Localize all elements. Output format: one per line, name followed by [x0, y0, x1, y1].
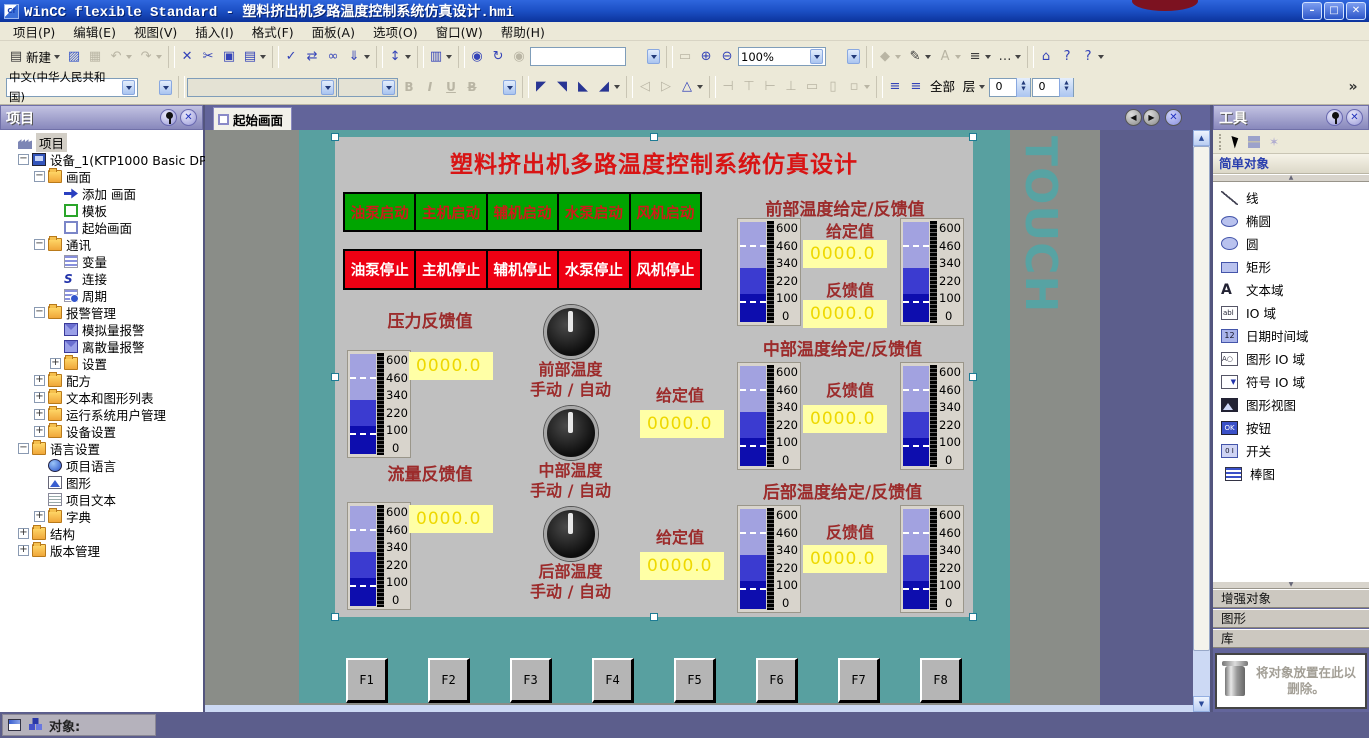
language-dd[interactable]: [139, 76, 175, 98]
menu-item[interactable]: 窗口(W): [427, 22, 492, 41]
gauge-scale-label: 100: [386, 423, 408, 437]
tree-item[interactable]: 字典: [0, 508, 203, 525]
tree-item[interactable]: 项目语言: [0, 457, 203, 474]
gauge-middle-feedback[interactable]: 6004603402201000: [900, 362, 964, 470]
new-button[interactable]: ▤ 新建: [6, 46, 63, 68]
knob-label: 中部温度手动 / 自动: [530, 461, 611, 501]
start-button[interactable]: 辅机启动: [488, 194, 557, 230]
layer-spinner-2[interactable]: 0: [1032, 78, 1074, 97]
middle-setpoint-io-field[interactable]: 0000.0: [640, 410, 724, 438]
tree-item[interactable]: 结构: [0, 525, 203, 542]
zoom-combo[interactable]: 100%: [738, 47, 826, 66]
rear-setpoint-label[interactable]: 给定值: [645, 524, 715, 548]
tree-item[interactable]: 报警管理: [0, 304, 203, 321]
transfer-button[interactable]: ⇓: [344, 46, 373, 68]
tool-switch[interactable]: 开关: [1213, 439, 1369, 462]
dropdown-arrow-icon[interactable]: [382, 80, 395, 95]
gauge-scale-label: 340: [776, 400, 798, 414]
flow-io-field[interactable]: 0000.0: [409, 505, 493, 533]
toolbar-grip: [1219, 134, 1222, 150]
rear-section-header[interactable]: 后部温度给定/反馈值: [720, 478, 965, 503]
fkey-button[interactable]: F7: [838, 658, 880, 703]
dropdown-arrow-icon[interactable]: [446, 55, 452, 59]
gauge-pressure[interactable]: 6004603402201000: [347, 350, 411, 458]
stop-button[interactable]: 辅机停止: [488, 251, 557, 288]
dropdown-arrow-icon[interactable]: [810, 49, 823, 64]
tree-item-icon: [32, 527, 46, 540]
align-top-button[interactable]: ⊤: [739, 76, 759, 98]
gauge-scale-label: 220: [776, 561, 798, 575]
gauge-scale-label: 460: [939, 383, 961, 397]
tree-expander-icon[interactable]: [34, 392, 45, 403]
gauge-scale-label: 340: [776, 256, 798, 270]
layer-spinner-1[interactable]: 0: [989, 78, 1031, 97]
same-size-button[interactable]: ▫: [844, 76, 873, 98]
simple-objects-list: 线 椭圆 圆 矩形 文本域 IO 域 日期时间域 图形 IO 域: [1213, 182, 1369, 581]
gauge-scale-label: 0: [939, 453, 961, 467]
layer-all-label[interactable]: 全部: [927, 76, 958, 98]
gauge-front-setpoint[interactable]: 6004603402201000: [737, 218, 801, 326]
font-color-button[interactable]: A: [935, 46, 964, 68]
gauge-scale-label: 340: [776, 543, 798, 557]
save-button[interactable]: ▦: [85, 46, 105, 68]
dropdown-arrow-icon[interactable]: [614, 85, 620, 89]
tool-datetime-field[interactable]: 日期时间域: [1213, 324, 1369, 347]
hmi-title[interactable]: 塑料挤出机多路温度控制系统仿真设计: [335, 145, 973, 179]
gauge-ticks: [377, 353, 384, 455]
tool-icon: [1221, 262, 1238, 273]
tool-text-field[interactable]: 文本域: [1213, 278, 1369, 301]
dropdown-arrow-icon[interactable]: [697, 85, 703, 89]
tree-item-icon: [64, 204, 78, 217]
tree-item[interactable]: 连接: [0, 270, 203, 287]
app-icon: Cf: [4, 4, 19, 19]
tool-bar-graph[interactable]: 棒图: [1213, 462, 1369, 485]
gauge-ticks: [767, 221, 774, 323]
selection-handle[interactable]: [650, 613, 658, 621]
title-bar: Cf WinCC flexible Standard - 塑料挤出机多路温度控制…: [0, 0, 1369, 22]
font-combo[interactable]: [187, 78, 337, 97]
tree-item[interactable]: 图形: [0, 474, 203, 491]
scroll-down-icon[interactable]: ▼: [1193, 696, 1210, 712]
select-cursor-icon[interactable]: [1231, 134, 1240, 148]
undo-button[interactable]: ↶: [106, 46, 135, 68]
cut-button[interactable]: ✂: [198, 46, 218, 68]
align-bottom-button[interactable]: ⊥: [781, 76, 801, 98]
dropdown-arrow-icon[interactable]: [260, 55, 266, 59]
dropdown-arrow-icon[interactable]: [864, 85, 870, 89]
tree-item[interactable]: 版本管理: [0, 542, 203, 559]
front-section-header[interactable]: 前部温度给定/反馈值: [725, 195, 965, 220]
gauge-scale-label: 340: [939, 400, 961, 414]
help-book-button[interactable]: ⌂: [1036, 46, 1056, 68]
tool-icon: [1221, 329, 1238, 343]
editor-area: 起始画面 ◀ ▶ ✕ TOUCH 塑料挤出机多路温度控制系统仿真设计 油泵启动主…: [205, 105, 1210, 712]
knob-label: 后部温度手动 / 自动: [530, 562, 611, 602]
close-panel-icon[interactable]: ✕: [180, 109, 197, 126]
fkey-button[interactable]: F6: [756, 658, 798, 703]
gauge-scale-label: 0: [939, 309, 961, 323]
copy-button[interactable]: ▣: [219, 46, 239, 68]
tool-line[interactable]: 线: [1213, 186, 1369, 209]
pressure-io-field[interactable]: 0000.0: [409, 352, 493, 380]
tree-expander-icon[interactable]: [34, 307, 45, 318]
project-panel: 项目 ✕ 项目 设备_1(KTP1000 Basic DP) 画面 添加 画面: [0, 105, 203, 712]
front-feedback-io-field[interactable]: 0000.0: [803, 300, 887, 328]
middle-section-header[interactable]: 中部温度给定/反馈值: [720, 335, 965, 360]
scrollbar-thumb[interactable]: [1193, 146, 1210, 651]
sort-button[interactable]: ↕: [385, 46, 414, 68]
dropdown-arrow-icon[interactable]: [1098, 55, 1104, 59]
horizontal-scrollbar[interactable]: [205, 705, 1193, 712]
gauge-scale-label: 460: [939, 526, 961, 540]
gauge-scale-label: 340: [386, 540, 408, 554]
tree-item[interactable]: 设备设置: [0, 423, 203, 440]
stop-button[interactable]: 主机停止: [416, 251, 485, 288]
tree-expander-icon[interactable]: [34, 239, 45, 250]
section-bar[interactable]: 图形: [1213, 609, 1369, 628]
delete-button[interactable]: ✕: [177, 46, 197, 68]
cross-reference-button[interactable]: ▥: [426, 46, 455, 68]
flow-label[interactable]: 流量反馈值: [365, 460, 495, 485]
maximize-button[interactable]: □: [1324, 2, 1344, 20]
tree-expander-icon[interactable]: [34, 375, 45, 386]
design-canvas[interactable]: TOUCH 塑料挤出机多路温度控制系统仿真设计 油泵启动主机启动辅机启动水泵启动…: [205, 130, 1193, 705]
dropdown-arrow-icon[interactable]: [122, 80, 135, 95]
pen-color-button[interactable]: ✎: [905, 46, 934, 68]
tree-expander-icon[interactable]: [50, 358, 61, 369]
tool-graphic-io-field[interactable]: 图形 IO 域: [1213, 347, 1369, 370]
menu-item[interactable]: 插入(I): [186, 22, 242, 41]
dropdown-arrow-icon[interactable]: [321, 80, 334, 95]
tool-ellipse[interactable]: 椭圆: [1213, 209, 1369, 232]
tab-next-icon[interactable]: ▶: [1143, 109, 1160, 126]
selection-handle[interactable]: [969, 373, 977, 381]
send-backward-button[interactable]: ≡: [906, 76, 926, 98]
fkey-button[interactable]: F1: [346, 658, 388, 703]
underline-button[interactable]: U: [441, 76, 461, 98]
line-width-button[interactable]: ≡: [965, 46, 994, 68]
gauge-scale-label: 0: [776, 596, 798, 610]
menu-item[interactable]: 帮助(H): [492, 22, 554, 41]
dropdown-arrow-icon[interactable]: [979, 85, 985, 89]
paste-button[interactable]: ▤: [240, 46, 269, 68]
tree-item[interactable]: 配方: [0, 372, 203, 389]
toolbar-overflow[interactable]: »: [1343, 76, 1363, 98]
preview-button[interactable]: ∞: [323, 46, 343, 68]
tree-item[interactable]: 文本和图形列表: [0, 389, 203, 406]
hmi-screen[interactable]: 塑料挤出机多路温度控制系统仿真设计 油泵启动主机启动辅机启动水泵启动风机启动 油…: [335, 137, 973, 617]
gauge-rear-feedback[interactable]: 6004603402201000: [900, 505, 964, 613]
dropdown-arrow-icon[interactable]: [159, 80, 172, 95]
tree-item[interactable]: 运行系统用户管理: [0, 406, 203, 423]
minimize-button[interactable]: –: [1302, 2, 1322, 20]
zoom-in-button[interactable]: ⊕: [696, 46, 716, 68]
tree-item[interactable]: 项目: [0, 134, 203, 151]
flip-h-button[interactable]: ◁: [635, 76, 655, 98]
dropdown-arrow-icon[interactable]: [925, 55, 931, 59]
italic-button[interactable]: I: [420, 76, 440, 98]
tree-item[interactable]: 设置: [0, 355, 203, 372]
front-setpoint-label[interactable]: 给定值: [810, 218, 890, 242]
tree-item-icon: [64, 340, 78, 353]
font-size-combo[interactable]: [338, 78, 398, 97]
help-search-button[interactable]: ?: [1078, 46, 1107, 68]
gauge-ticks: [930, 508, 937, 610]
search-input[interactable]: [530, 47, 626, 66]
tool-symbolic-io-field[interactable]: 符号 IO 域: [1213, 370, 1369, 393]
tree-expander-icon[interactable]: [34, 171, 45, 182]
stop-button[interactable]: 油泵停止: [345, 251, 414, 288]
collapse-band-up-icon[interactable]: ▲: [1213, 174, 1369, 182]
gauge-flow[interactable]: 6004603402201000: [347, 502, 411, 610]
tree-item-icon: [64, 187, 78, 200]
object-status-tab[interactable]: 对象:: [2, 714, 156, 736]
fkey-button[interactable]: F4: [592, 658, 634, 703]
dropdown-arrow-icon[interactable]: [985, 55, 991, 59]
rear-feedback-label[interactable]: 反馈值: [810, 519, 890, 543]
tree-item-icon: [32, 544, 46, 557]
dropdown-arrow-icon[interactable]: [847, 49, 860, 64]
selection-handle[interactable]: [969, 133, 977, 141]
flip-v-button[interactable]: ▷: [656, 76, 676, 98]
help-index-button[interactable]: ?: [1057, 46, 1077, 68]
start-runtime-button[interactable]: ⇄: [302, 46, 322, 68]
line-style-button[interactable]: …: [995, 46, 1024, 68]
tool-icon: [1221, 444, 1238, 458]
middle-feedback-label[interactable]: 反馈值: [810, 377, 890, 401]
front-feedback-label[interactable]: 反馈值: [810, 277, 890, 301]
bold-button[interactable]: B: [399, 76, 419, 98]
align-right-button[interactable]: ⊢: [760, 76, 780, 98]
tool-button[interactable]: 按钮: [1213, 416, 1369, 439]
pin-icon[interactable]: [160, 109, 177, 126]
tree-item-icon: [64, 323, 78, 336]
dropdown-arrow-icon[interactable]: [955, 55, 961, 59]
tree-item-icon: [48, 391, 62, 404]
gauge-scale-label: 220: [939, 274, 961, 288]
search-dd[interactable]: [627, 46, 663, 68]
manual-auto-knob[interactable]: [544, 507, 598, 561]
find-button[interactable]: ◉: [467, 46, 487, 68]
tree-expander-icon[interactable]: [34, 426, 45, 437]
menu-item[interactable]: 视图(V): [125, 22, 186, 41]
tool-icon: [1221, 375, 1238, 389]
gauge-scale-label: 0: [386, 593, 408, 607]
zoom-out-button[interactable]: ⊖: [717, 46, 737, 68]
gauge-ticks: [377, 505, 384, 607]
tree-item-icon: [64, 357, 78, 370]
menu-item[interactable]: 编辑(E): [64, 22, 125, 41]
tree-item[interactable]: 设备_1(KTP1000 Basic DP): [0, 151, 203, 168]
selection-handle[interactable]: [969, 613, 977, 621]
tree-expander-icon[interactable]: [18, 154, 29, 165]
menu-item[interactable]: 选项(O): [364, 22, 427, 41]
start-button[interactable]: 油泵启动: [345, 194, 414, 230]
gauge-scale-label: 0: [386, 441, 408, 455]
rotate-tr-button[interactable]: ◥: [552, 76, 572, 98]
gauge-front-feedback[interactable]: 6004603402201000: [900, 218, 964, 326]
pin-icon[interactable]: [1326, 109, 1343, 126]
section-bar[interactable]: 增强对象: [1213, 589, 1369, 608]
manual-auto-knob[interactable]: [544, 406, 598, 460]
rotate-button[interactable]: △: [677, 76, 706, 98]
stop-button[interactable]: 风机停止: [631, 251, 700, 288]
close-panel-icon[interactable]: ✕: [1346, 109, 1363, 126]
middle-feedback-io-field[interactable]: 0000.0: [803, 405, 887, 433]
tab-start-screen[interactable]: 起始画面: [213, 107, 292, 130]
gauge-scale-label: 460: [939, 239, 961, 253]
tool-circle[interactable]: 圆: [1213, 232, 1369, 255]
start-button[interactable]: 风机启动: [631, 194, 700, 230]
tree-item[interactable]: 模板: [0, 202, 203, 219]
menu-item[interactable]: 格式(F): [243, 22, 303, 41]
layer-select[interactable]: 层: [959, 76, 988, 98]
section-bar[interactable]: 库: [1213, 629, 1369, 648]
window-icon: [8, 719, 21, 731]
middle-setpoint-label[interactable]: 给定值: [645, 382, 715, 406]
dropdown-arrow-icon[interactable]: [126, 55, 132, 59]
section-simple-objects[interactable]: 简单对象: [1213, 154, 1369, 174]
tree-item[interactable]: 通讯: [0, 236, 203, 253]
manual-auto-knob[interactable]: [544, 305, 598, 359]
tools-mini-toolbar: ✶: [1213, 130, 1369, 154]
zoom-dd[interactable]: [827, 46, 863, 68]
screen-icon: [218, 114, 229, 125]
menu-bar: 项目(P)编辑(E)视图(V)插入(I)格式(F)面板(A)选项(O)窗口(W)…: [0, 22, 1369, 41]
tab-prev-icon[interactable]: ◀: [1125, 109, 1142, 126]
center-h-button[interactable]: ▭: [802, 76, 822, 98]
gauge-scale-label: 0: [939, 596, 961, 610]
tree-item[interactable]: 周期: [0, 287, 203, 304]
start-button[interactable]: 主机启动: [416, 194, 485, 230]
dropdown-arrow-icon[interactable]: [364, 55, 370, 59]
selection-handle[interactable]: [331, 613, 339, 621]
rear-setpoint-io-field[interactable]: 0000.0: [640, 552, 724, 580]
tree-item[interactable]: 项目文本: [0, 491, 203, 508]
wrench-icon[interactable]: ✶: [1269, 135, 1279, 149]
dropdown-arrow-icon[interactable]: [1015, 55, 1021, 59]
dropdown-arrow-icon[interactable]: [503, 80, 516, 95]
collapse-band-down-icon[interactable]: ▼: [1213, 581, 1369, 589]
replace-button[interactable]: ↻: [488, 46, 508, 68]
fkey-button[interactable]: F3: [510, 658, 552, 703]
knob-column: 前部温度手动 / 自动 中部温度手动 / 自动 后部温度手动 / 自动: [513, 305, 628, 608]
fill-color-button[interactable]: ◆: [875, 46, 904, 68]
temperature-knob-block: 中部温度手动 / 自动: [513, 406, 628, 507]
fkey-button[interactable]: F2: [428, 658, 470, 703]
gauge-scale-label: 220: [386, 406, 408, 420]
gauge-scale-label: 460: [776, 383, 798, 397]
start-button[interactable]: 水泵启动: [559, 194, 628, 230]
tool-graphic-view[interactable]: 图形视图: [1213, 393, 1369, 416]
dropdown-arrow-icon[interactable]: [156, 55, 162, 59]
center-v-button[interactable]: ▯: [823, 76, 843, 98]
open-button[interactable]: ▨: [64, 46, 84, 68]
dropdown-arrow-icon[interactable]: [647, 49, 660, 64]
rotate-tl-button[interactable]: ◤: [531, 76, 551, 98]
check-consistency-button[interactable]: ✓: [281, 46, 301, 68]
stop-button[interactable]: 水泵停止: [559, 251, 628, 288]
tree-item-icon: [32, 442, 46, 455]
gauge-scale-label: 220: [386, 558, 408, 572]
language-combo[interactable]: 中文(中华人民共和国): [6, 78, 138, 97]
tree-item[interactable]: 离散量报警: [0, 338, 203, 355]
tree-expander-icon[interactable]: [34, 511, 45, 522]
gauge-rear-setpoint[interactable]: 6004603402201000: [737, 505, 801, 613]
align-left-button[interactable]: ⊣: [718, 76, 738, 98]
selection-handle[interactable]: [331, 373, 339, 381]
pressure-label[interactable]: 压力反馈值: [365, 307, 495, 332]
project-panel-title: 项目: [6, 108, 157, 128]
tab-close-icon[interactable]: ✕: [1165, 109, 1182, 126]
menu-toolbar-area: 项目(P)编辑(E)视图(V)插入(I)格式(F)面板(A)选项(O)窗口(W)…: [0, 22, 1369, 105]
scroll-up-icon[interactable]: ▲: [1193, 130, 1210, 146]
find-next-button[interactable]: ◉: [509, 46, 529, 68]
format-dd[interactable]: [483, 76, 519, 98]
rotate-br-button[interactable]: ◢: [594, 76, 623, 98]
tree-expander-icon[interactable]: [18, 443, 29, 454]
tree-item-icon: [48, 374, 62, 387]
zoom-region-button[interactable]: ▭: [675, 46, 695, 68]
menu-item[interactable]: 面板(A): [303, 22, 364, 41]
gauge-scale-label: 220: [776, 274, 798, 288]
gauge-scale-label: 340: [386, 388, 408, 402]
dropdown-arrow-icon[interactable]: [54, 55, 60, 59]
close-button[interactable]: ✕: [1346, 2, 1366, 20]
tool-rectangle[interactable]: 矩形: [1213, 255, 1369, 278]
vertical-scrollbar[interactable]: ▲ ▼: [1193, 130, 1210, 712]
fkey-button[interactable]: F5: [674, 658, 716, 703]
tree-item[interactable]: 语言设置: [0, 440, 203, 457]
tree-item[interactable]: 起始画面: [0, 219, 203, 236]
menu-item[interactable]: 项目(P): [4, 22, 64, 41]
stamp-icon[interactable]: [1248, 136, 1260, 148]
dropdown-arrow-icon[interactable]: [405, 55, 411, 59]
selection-handle[interactable]: [650, 133, 658, 141]
start-button-row: 油泵启动主机启动辅机启动水泵启动风机启动: [343, 192, 702, 232]
gauge-scale-label: 460: [386, 371, 408, 385]
tool-icon: [1221, 352, 1238, 366]
redo-button[interactable]: ↷: [136, 46, 165, 68]
tool-icon: [1221, 216, 1238, 227]
dropdown-arrow-icon[interactable]: [895, 55, 901, 59]
rear-feedback-io-field[interactable]: 0000.0: [803, 545, 887, 573]
tree-item[interactable]: 添加 画面: [0, 185, 203, 202]
tree-item-icon: [64, 289, 78, 302]
rotate-bl-button[interactable]: ◣: [573, 76, 593, 98]
delete-drop-area[interactable]: 将对象放置在此以删除。: [1215, 653, 1367, 709]
project-panel-header: 项目 ✕: [0, 105, 203, 130]
knob-label: 前部温度手动 / 自动: [530, 360, 611, 400]
tree-item-icon: [18, 136, 32, 149]
toolbar-main: ▤ 新建 ▨ ▦ ↶ ↷: [0, 41, 1369, 72]
tool-io-field[interactable]: IO 域: [1213, 301, 1369, 324]
selection-handle[interactable]: [331, 133, 339, 141]
tree-expander-icon[interactable]: [18, 528, 29, 539]
tree-item[interactable]: 模拟量报警: [0, 321, 203, 338]
bring-forward-button[interactable]: ≡: [885, 76, 905, 98]
strike-button[interactable]: B: [462, 76, 482, 98]
tree-expander-icon[interactable]: [34, 409, 45, 420]
tree-item[interactable]: 变量: [0, 253, 203, 270]
tree-item[interactable]: 画面: [0, 168, 203, 185]
gauge-middle-setpoint[interactable]: 6004603402201000: [737, 362, 801, 470]
front-setpoint-io-field[interactable]: 0000.0: [803, 240, 887, 268]
tool-icon: [1221, 306, 1238, 320]
fkey-button[interactable]: F8: [920, 658, 962, 703]
tree-expander-icon[interactable]: [18, 545, 29, 556]
